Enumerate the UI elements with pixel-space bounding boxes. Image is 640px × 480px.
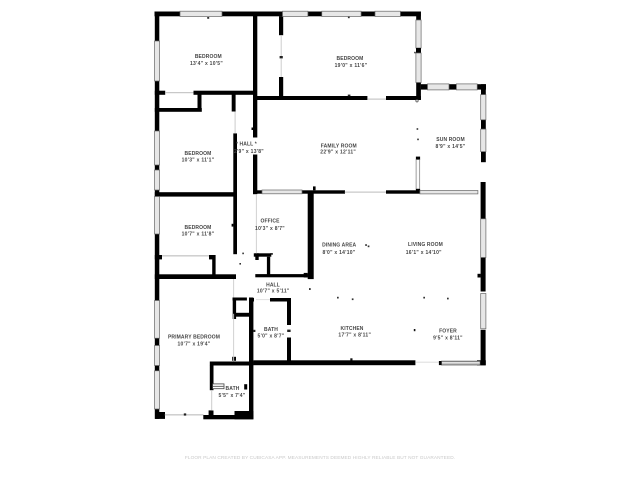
svg-text:FOYER: FOYER [439, 328, 457, 334]
svg-text:5'0" x 8'7": 5'0" x 8'7" [258, 333, 285, 339]
svg-text:BATH: BATH [264, 327, 278, 333]
svg-text:FLOOR PLAN CREATED BY CUBICASA: FLOOR PLAN CREATED BY CUBICASA APP. MEAS… [185, 455, 455, 461]
svg-text:DINING AREA: DINING AREA [322, 242, 356, 248]
svg-text:OFFICE: OFFICE [260, 218, 280, 224]
svg-text:10'3" x 8'7": 10'3" x 8'7" [255, 226, 285, 232]
svg-text:19'0" x 11'6": 19'0" x 11'6" [335, 63, 368, 69]
svg-text:10'7" x 19'4": 10'7" x 19'4" [177, 342, 210, 348]
svg-text:10'7" x 5'11": 10'7" x 5'11" [257, 289, 290, 295]
svg-text:8'9" x 14'5": 8'9" x 14'5" [436, 144, 466, 150]
svg-text:10'3" x 11'1": 10'3" x 11'1" [182, 158, 215, 164]
svg-text:BATH: BATH [226, 386, 240, 392]
svg-text:17'7" x 8'11": 17'7" x 8'11" [338, 333, 371, 339]
svg-text:FAMILY ROOM: FAMILY ROOM [321, 144, 357, 150]
svg-text:HALL: HALL [266, 282, 280, 288]
svg-text:9'5" x 8'11": 9'5" x 8'11" [433, 335, 463, 341]
svg-text:SUN ROOM: SUN ROOM [436, 137, 464, 143]
svg-text:5'5" x 7'4": 5'5" x 7'4" [219, 393, 246, 399]
svg-text:BEDROOM: BEDROOM [185, 151, 212, 157]
svg-text:13'4" x 10'5": 13'4" x 10'5" [190, 61, 223, 67]
svg-text:PRIMARY BEDROOM: PRIMARY BEDROOM [168, 335, 220, 341]
svg-text:BEDROOM: BEDROOM [195, 54, 222, 60]
svg-text:10'7" x 11'8": 10'7" x 11'8" [182, 232, 215, 238]
svg-text:2'9" x 13'8": 2'9" x 13'8" [234, 149, 264, 155]
svg-text:BEDROOM: BEDROOM [185, 225, 212, 231]
svg-text:KITCHEN: KITCHEN [340, 326, 363, 332]
svg-text:22'9" x 12'11": 22'9" x 12'11" [320, 150, 356, 156]
svg-text:LIVING ROOM: LIVING ROOM [408, 242, 443, 248]
svg-text:16'1" x 14'10": 16'1" x 14'10" [406, 250, 442, 256]
svg-text:8'0" x 14'10": 8'0" x 14'10" [322, 250, 355, 256]
svg-text:* HALL *: * HALL * [236, 141, 257, 147]
svg-text:BEDROOM: BEDROOM [337, 56, 364, 62]
